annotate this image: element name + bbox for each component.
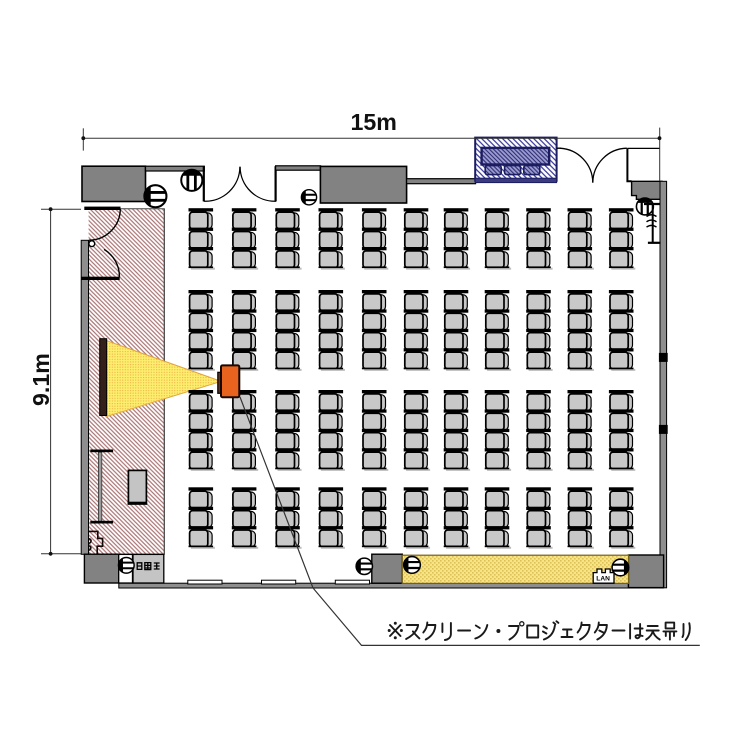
svg-text:15m: 15m (351, 109, 397, 135)
svg-text:9.1m: 9.1m (28, 353, 54, 406)
svg-text:LAN: LAN (596, 576, 610, 583)
